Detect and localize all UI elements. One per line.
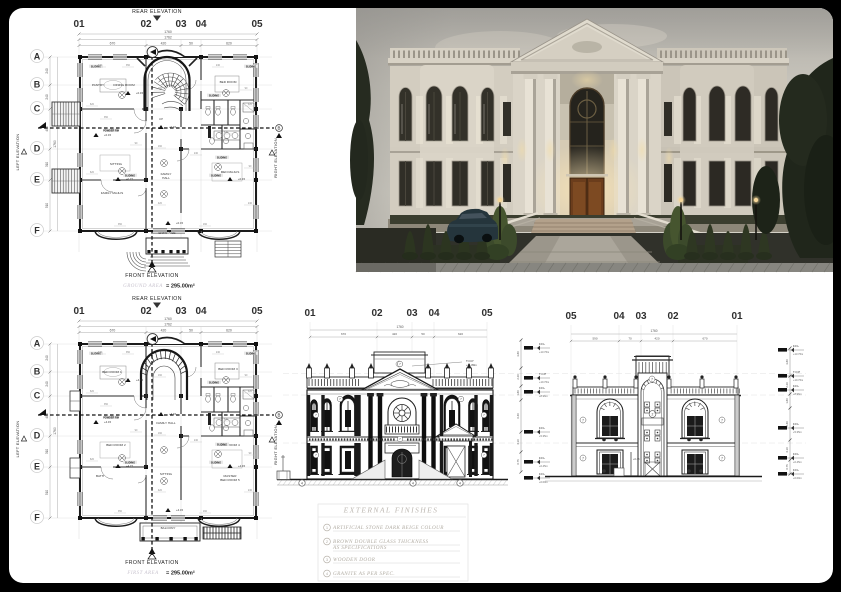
svg-text:50: 50	[189, 328, 193, 332]
svg-text:350: 350	[126, 64, 131, 67]
svg-text:670: 670	[341, 332, 346, 336]
svg-text:F.F.L: F.F.L	[793, 452, 799, 456]
svg-text:EXTERNAL FINISHES: EXTERNAL FINISHES	[343, 506, 439, 515]
svg-text:310: 310	[45, 162, 49, 168]
svg-text:SLIDING: SLIDING	[211, 174, 221, 177]
svg-text:04: 04	[613, 311, 625, 322]
svg-text:FAMILY MAJLIS: FAMILY MAJLIS	[101, 191, 123, 195]
svg-text:= 295.00m²: = 295.00m²	[166, 283, 195, 290]
svg-text:SITTING: SITTING	[110, 162, 123, 166]
svg-text:240: 240	[45, 381, 49, 387]
svg-text:1: 1	[326, 526, 328, 530]
svg-text:04: 04	[195, 306, 207, 317]
svg-text:HALL: HALL	[162, 176, 170, 180]
svg-text:620: 620	[224, 418, 229, 421]
svg-text:02: 02	[371, 308, 383, 319]
svg-text:+5.35m: +5.35m	[793, 430, 802, 434]
svg-text:A: A	[34, 51, 41, 61]
svg-text:AS SPECIFICATIONS: AS SPECIFICATIONS	[332, 545, 387, 551]
svg-text:+8.96m: +8.96m	[793, 392, 802, 396]
svg-text:B: B	[278, 126, 281, 131]
svg-text:01: 01	[73, 306, 85, 317]
svg-text:50: 50	[421, 332, 425, 336]
svg-text:FIRST AREA: FIRST AREA	[126, 571, 159, 576]
svg-text:05: 05	[565, 311, 577, 322]
svg-text:350: 350	[104, 403, 109, 406]
svg-text:+8.96m: +8.96m	[539, 394, 548, 398]
svg-text:SITTING: SITTING	[160, 472, 173, 476]
svg-text:160: 160	[158, 432, 163, 435]
svg-text:+4.15: +4.15	[136, 378, 144, 382]
svg-text:620: 620	[226, 41, 232, 45]
svg-text:240: 240	[45, 355, 49, 361]
svg-text:4.10: 4.10	[785, 447, 789, 453]
svg-text:350: 350	[118, 223, 123, 226]
svg-text:ARTIFICIAL STONE DARK BEIGE CO: ARTIFICIAL STONE DARK BEIGE COLOUR	[332, 525, 444, 531]
svg-text:160: 160	[203, 223, 208, 226]
svg-text:1762: 1762	[164, 322, 172, 326]
svg-text:C: C	[34, 390, 41, 400]
svg-text:+5.35m: +5.35m	[539, 434, 548, 438]
svg-text:7: 7	[721, 418, 723, 422]
svg-text:F.F.L: F.F.L	[539, 472, 545, 476]
svg-text:T.O.P: T.O.P	[793, 370, 800, 374]
svg-text:+13.76m: +13.76m	[793, 352, 803, 356]
svg-text:F: F	[34, 512, 40, 522]
svg-text:01: 01	[731, 311, 743, 322]
svg-text:E: E	[34, 461, 40, 471]
svg-text:2.20: 2.20	[785, 382, 789, 388]
svg-text:D: D	[34, 143, 41, 153]
svg-text:1760: 1760	[396, 325, 403, 329]
svg-text:05: 05	[481, 308, 493, 319]
svg-text:+0.15: +0.15	[126, 177, 134, 181]
svg-text:0.40: 0.40	[516, 413, 520, 419]
svg-text:04: 04	[195, 19, 207, 30]
svg-text:350: 350	[126, 351, 131, 354]
svg-text:+10.76m: +10.76m	[793, 378, 803, 382]
svg-text:SLIDING: SLIDING	[125, 174, 135, 177]
svg-text:REAR ELEVATION: REAR ELEVATION	[132, 296, 182, 302]
svg-text:+0.45m: +0.45m	[539, 464, 548, 468]
svg-text:+0.00m: +0.00m	[793, 476, 802, 480]
svg-text:F: F	[34, 225, 40, 235]
svg-text:BED ROOM 3: BED ROOM 3	[218, 367, 238, 371]
svg-text:01: 01	[304, 308, 316, 319]
svg-text:420: 420	[98, 64, 103, 67]
svg-text:1762: 1762	[164, 35, 172, 39]
svg-text:3: 3	[326, 558, 328, 562]
svg-text:SLIDING: SLIDING	[246, 352, 256, 355]
svg-text:+0.15: +0.15	[136, 91, 144, 95]
svg-text:510: 510	[45, 203, 49, 209]
svg-text:BALCONY: BALCONY	[161, 526, 176, 530]
svg-text:1760: 1760	[53, 140, 57, 148]
svg-text:2: 2	[326, 540, 328, 544]
svg-text:7: 7	[721, 456, 723, 460]
svg-text:+4.15: +4.15	[176, 508, 184, 512]
svg-text:A: A	[34, 338, 41, 348]
svg-text:GRANITE AS PER SPEC.: GRANITE AS PER SPEC.	[333, 571, 395, 577]
svg-text:620: 620	[458, 332, 463, 336]
svg-text:SLIDING: SLIDING	[211, 461, 221, 464]
svg-text:240: 240	[248, 202, 253, 205]
svg-text:05: 05	[251, 306, 263, 317]
svg-text:240: 240	[45, 68, 49, 74]
svg-text:03: 03	[635, 311, 647, 322]
svg-text:350: 350	[104, 116, 109, 119]
svg-text:04: 04	[428, 308, 440, 319]
svg-text:620: 620	[224, 131, 229, 134]
svg-text:240: 240	[216, 351, 221, 354]
svg-text:670: 670	[110, 41, 116, 45]
svg-text:01: 01	[73, 19, 85, 30]
svg-text:+13.76m: +13.76m	[539, 350, 549, 354]
svg-text:7: 7	[582, 418, 584, 422]
svg-text:RIGHT ELEVATION: RIGHT ELEVATION	[273, 425, 278, 465]
svg-text:420: 420	[248, 103, 253, 106]
svg-text:F.F.L: F.F.L	[539, 342, 545, 346]
svg-text:BED ROOM 2: BED ROOM 2	[106, 443, 126, 447]
svg-text:670: 670	[110, 328, 116, 332]
svg-text:420: 420	[98, 351, 103, 354]
svg-text:GROUND AREA: GROUND AREA	[123, 284, 163, 289]
svg-text:B: B	[34, 79, 41, 89]
svg-text:+10.76m: +10.76m	[539, 380, 549, 384]
svg-text:510: 510	[45, 490, 49, 496]
svg-text:160: 160	[158, 374, 163, 377]
svg-text:+4.15: +4.15	[238, 464, 246, 468]
svg-text:POWDER RM: POWDER RM	[103, 129, 119, 132]
svg-text:FRONT ELEVATION: FRONT ELEVATION	[125, 560, 179, 566]
svg-text:F.F.L: F.F.L	[539, 426, 545, 430]
svg-text:240: 240	[194, 439, 199, 442]
svg-text:620: 620	[90, 103, 95, 106]
svg-text:420: 420	[654, 337, 659, 341]
svg-text:+4.15: +4.15	[126, 464, 134, 468]
svg-text:+0.45: +0.45	[633, 457, 640, 461]
svg-text:240: 240	[216, 64, 221, 67]
svg-text:WOODEN DOOR: WOODEN DOOR	[333, 557, 376, 563]
svg-text:420: 420	[158, 202, 163, 205]
svg-text:1760: 1760	[53, 427, 57, 435]
svg-text:SLIDING: SLIDING	[217, 156, 227, 159]
svg-text:B: B	[34, 366, 41, 376]
svg-text:0.75: 0.75	[785, 464, 789, 470]
svg-text:3.80: 3.80	[516, 351, 520, 357]
svg-text:02: 02	[667, 311, 679, 322]
svg-text:SLIDING: SLIDING	[125, 461, 135, 464]
svg-text:BED ROOM 5: BED ROOM 5	[220, 478, 240, 482]
svg-text:620: 620	[90, 458, 95, 461]
svg-text:420: 420	[158, 489, 163, 492]
svg-text:1.80: 1.80	[516, 390, 520, 396]
svg-text:POWDER RM: POWDER RM	[103, 416, 119, 419]
svg-text:B: B	[278, 413, 281, 418]
svg-text:BED ROOM 1: BED ROOM 1	[102, 370, 122, 374]
svg-text:420: 420	[161, 328, 167, 332]
svg-text:SLIDING: SLIDING	[217, 443, 227, 446]
svg-text:ENTRANCE: ENTRANCE	[158, 231, 175, 235]
svg-text:T.O.P: T.O.P	[539, 372, 546, 376]
svg-text:7: 7	[582, 456, 584, 460]
svg-text:03: 03	[175, 306, 187, 317]
svg-text:240: 240	[194, 152, 199, 155]
svg-text:PANTRY: PANTRY	[92, 83, 104, 87]
svg-text:F.F.L: F.F.L	[793, 468, 799, 472]
svg-text:02: 02	[140, 306, 152, 317]
svg-text:70: 70	[628, 337, 632, 341]
svg-text:160: 160	[158, 87, 163, 90]
svg-text:3.80: 3.80	[785, 359, 789, 365]
svg-text:620: 620	[90, 390, 95, 393]
svg-text:FAMILY HALL: FAMILY HALL	[156, 421, 176, 425]
svg-text:05: 05	[251, 19, 263, 30]
svg-text:F.F.L: F.F.L	[793, 384, 799, 388]
svg-text:REAR ELEVATION: REAR ELEVATION	[132, 9, 182, 15]
svg-text:2.20: 2.20	[516, 374, 520, 380]
svg-text:03: 03	[175, 19, 187, 30]
svg-text:MEN MAJLIS: MEN MAJLIS	[221, 170, 240, 174]
svg-text:FRONT ELEVATION: FRONT ELEVATION	[125, 273, 179, 279]
svg-text:+0.15: +0.15	[176, 221, 184, 225]
svg-text:= 295.00m²: = 295.00m²	[166, 570, 195, 577]
svg-text:1760: 1760	[164, 317, 172, 321]
svg-text:420: 420	[248, 390, 253, 393]
svg-text:RIGHT ELEVATION: RIGHT ELEVATION	[273, 138, 278, 178]
svg-text:+4.15: +4.15	[104, 420, 112, 424]
svg-text:1.80: 1.80	[785, 398, 789, 404]
svg-text:160: 160	[203, 510, 208, 513]
svg-text:DINING ROOM: DINING ROOM	[113, 83, 135, 87]
svg-text:+0.45m: +0.45m	[793, 460, 802, 464]
svg-text:F.F.L: F.F.L	[793, 344, 799, 348]
svg-text:350: 350	[118, 510, 123, 513]
svg-text:310: 310	[45, 449, 49, 455]
svg-text:BATH: BATH	[96, 474, 104, 478]
svg-text:SLIDING: SLIDING	[209, 381, 219, 384]
svg-text:F.F.L: F.F.L	[539, 456, 545, 460]
svg-text:4.10: 4.10	[516, 439, 520, 445]
svg-text:03: 03	[406, 308, 418, 319]
svg-text:0.75: 0.75	[516, 459, 520, 465]
svg-text:LEFT ELEVATION: LEFT ELEVATION	[15, 421, 20, 458]
svg-text:1760: 1760	[164, 30, 172, 34]
svg-text:SLIDING: SLIDING	[246, 65, 256, 68]
svg-text:7: 7	[651, 377, 653, 381]
svg-text:590: 590	[592, 337, 597, 341]
svg-text:420: 420	[392, 332, 397, 336]
svg-text:620: 620	[226, 328, 232, 332]
svg-text:240: 240	[45, 94, 49, 100]
svg-text:160: 160	[158, 145, 163, 148]
svg-text:BED ROOM: BED ROOM	[220, 80, 237, 84]
svg-text:D: D	[34, 430, 41, 440]
svg-text:4: 4	[301, 481, 303, 485]
svg-text:02: 02	[140, 19, 152, 30]
svg-text:670: 670	[702, 337, 707, 341]
svg-text:F.F.L: F.F.L	[793, 422, 799, 426]
svg-text:F.F.L: F.F.L	[539, 386, 545, 390]
svg-text:4: 4	[412, 481, 414, 485]
svg-text:2: 2	[652, 413, 654, 417]
svg-text:+0.15: +0.15	[104, 133, 112, 137]
svg-text:C: C	[34, 103, 41, 113]
svg-text:SLIDING: SLIDING	[209, 94, 219, 97]
svg-text:420: 420	[161, 41, 167, 45]
svg-text:+0.15: +0.15	[238, 177, 246, 181]
svg-text:1760: 1760	[650, 329, 657, 333]
svg-text:240: 240	[248, 489, 253, 492]
svg-text:+0.00m: +0.00m	[539, 480, 548, 484]
svg-text:0.40: 0.40	[785, 421, 789, 427]
svg-text:UP: UP	[159, 117, 163, 121]
svg-text:4: 4	[459, 481, 461, 485]
svg-text:E: E	[34, 174, 40, 184]
svg-text:LEFT ELEVATION: LEFT ELEVATION	[15, 134, 20, 171]
svg-text:50: 50	[189, 41, 193, 45]
svg-text:620: 620	[90, 171, 95, 174]
svg-text:4: 4	[326, 572, 328, 576]
